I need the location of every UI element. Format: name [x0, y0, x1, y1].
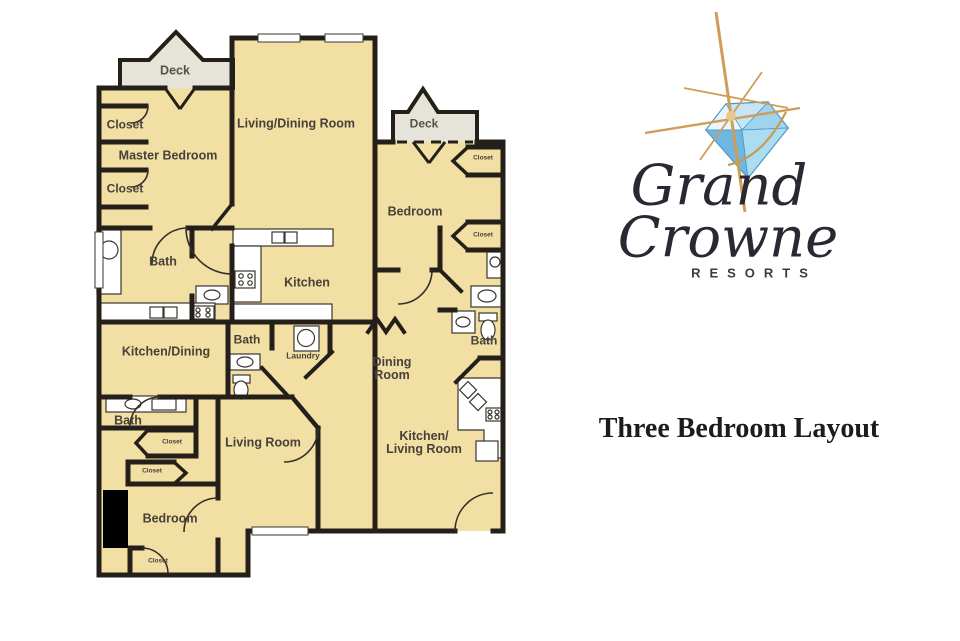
logo-word-resorts: RESORTS — [691, 266, 817, 281]
room-label-closet-top-2: Closet — [107, 183, 144, 196]
kitchen-living-line2: Living Room — [386, 443, 462, 456]
page: Deck Closet Master Bedroom Closet Bath K… — [0, 0, 960, 641]
logo-word-crowne: Crowne — [618, 206, 838, 271]
room-label-bath-center: Bath — [234, 334, 261, 347]
room-label-living-room: Living Room — [225, 436, 301, 449]
room-label-closet-small-2: Closet — [142, 469, 162, 476]
room-label-master-bedroom: Master Bedroom — [119, 149, 218, 162]
room-label-closet-small-1: Closet — [162, 440, 182, 447]
counter — [233, 304, 332, 322]
room-label-bedroom-right: Bedroom — [388, 205, 443, 218]
room-label-bath-lower: Bath — [114, 414, 142, 427]
floor-plan-drawing — [0, 0, 960, 641]
room-label-laundry: Laundry — [286, 352, 320, 361]
room-label-dining-room: Dining Room — [373, 356, 412, 382]
room-label-kitchen-dining: Kitchen/Dining — [122, 345, 210, 358]
door-panel — [476, 441, 498, 461]
room-label-deck-left: Deck — [160, 64, 190, 77]
dining-room-line2: Room — [373, 369, 412, 382]
stove — [235, 271, 255, 288]
room-label-bath-master: Bath — [149, 255, 177, 268]
room-label-bath-right: Bath — [471, 335, 498, 348]
room-label-deck-right: Deck — [410, 118, 439, 131]
room-label-kitchen-living: Kitchen/ Living Room — [386, 430, 462, 456]
fireplace-block — [103, 490, 128, 548]
page-title: Three Bedroom Layout — [599, 413, 880, 445]
room-label-closet-right-1: Closet — [473, 156, 493, 163]
room-label-closet-top-1: Closet — [107, 119, 144, 132]
room-label-living-dining-room: Living/Dining Room — [237, 117, 355, 130]
stove — [193, 306, 214, 319]
room-label-closet-small-3: Closet — [148, 559, 168, 566]
room-label-bedroom-lower: Bedroom — [143, 512, 198, 525]
stove — [486, 408, 501, 421]
room-label-closet-right-2: Closet — [473, 233, 493, 240]
room-label-kitchen: Kitchen — [284, 276, 330, 289]
deck-right-floor — [393, 89, 477, 142]
